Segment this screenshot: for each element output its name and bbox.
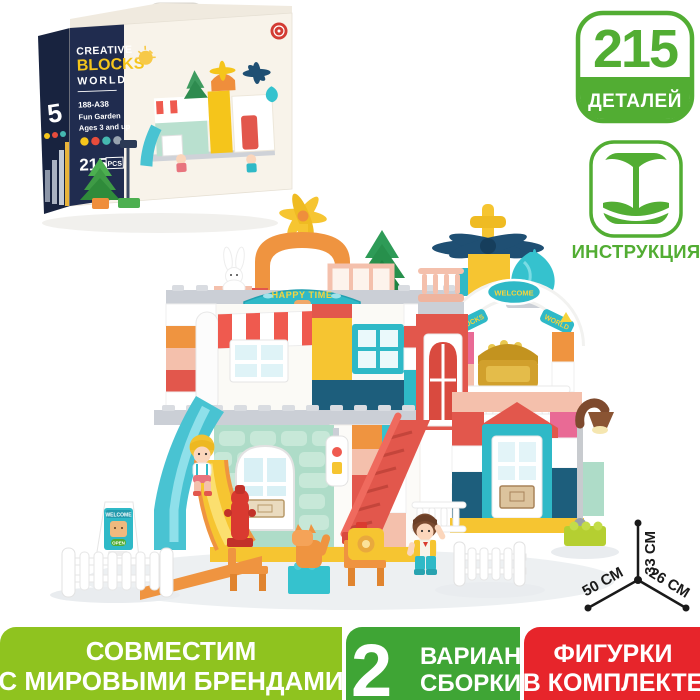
board-status-text: OPEN (112, 541, 125, 546)
box-model: 188-A38 (78, 100, 110, 110)
brand-logo-icon (271, 23, 288, 40)
banner-compatible-line1: СОВМЕСТИМ (86, 636, 257, 666)
banner-figures-line2: В КОМПЛЕКТЕ (523, 669, 700, 697)
banner-variants-line2: СБОРКИ (420, 670, 521, 697)
banner-figures: ФИГУРКИ В КОМПЛЕКТЕ (523, 627, 700, 700)
banner-compatible-line2: С МИРОВЫМИ БРЕНДАМИ (0, 666, 344, 696)
box-title-2: BLOCKS (77, 55, 145, 74)
upper-floor (166, 304, 458, 412)
upper-window-right (352, 324, 404, 374)
instruction-badge: ИНСТРУКЦИЯ (572, 142, 700, 262)
product-scene: 5 CREATIVE BLOCKS WORLD 188-A38 Fun Gard… (0, 0, 700, 700)
instruction-label: ИНСТРУКЦИЯ (572, 241, 700, 262)
box-title-3: WORLD (77, 74, 127, 88)
happy-time-text: HAPPY TIME (272, 290, 333, 300)
box-pieces-unit: PCS (107, 161, 122, 169)
parts-count-label: ДЕТАЛЕЙ (588, 90, 682, 112)
banner-figures-line1: ФИГУРКИ (554, 640, 673, 668)
banner-compatible: СОВМЕСТИМ С МИРОВЫМИ БРЕНДАМИ (0, 627, 344, 700)
box-ages: Ages 3 and up (79, 122, 131, 133)
treasure-chest (478, 340, 538, 388)
board-title-text: WELCOME (105, 513, 132, 519)
dimension-depth: 26 СМ (646, 565, 692, 602)
product-image: 5 CREATIVE BLOCKS WORLD 188-A38 Fun Gard… (0, 0, 700, 700)
tower-door (492, 436, 542, 518)
box-theme: Fun Garden (78, 111, 121, 121)
banner-variants: 2 ВАРИАНТА СБОРКИ (346, 627, 552, 700)
propeller-right (470, 204, 506, 240)
arch-center-text: WELCOME (494, 289, 533, 298)
hanging-banner (326, 428, 348, 486)
product-box: 5 CREATIVE BLOCKS WORLD 188-A38 Fun Gard… (38, 3, 292, 214)
upper-window-left (230, 340, 288, 382)
banner-variants-number: 2 (351, 629, 390, 700)
parts-count-value: 215 (593, 19, 678, 79)
parts-count-badge: 215 ДЕТАЛЕЙ (578, 13, 692, 121)
welcome-board: WELCOME OPEN (96, 502, 139, 558)
